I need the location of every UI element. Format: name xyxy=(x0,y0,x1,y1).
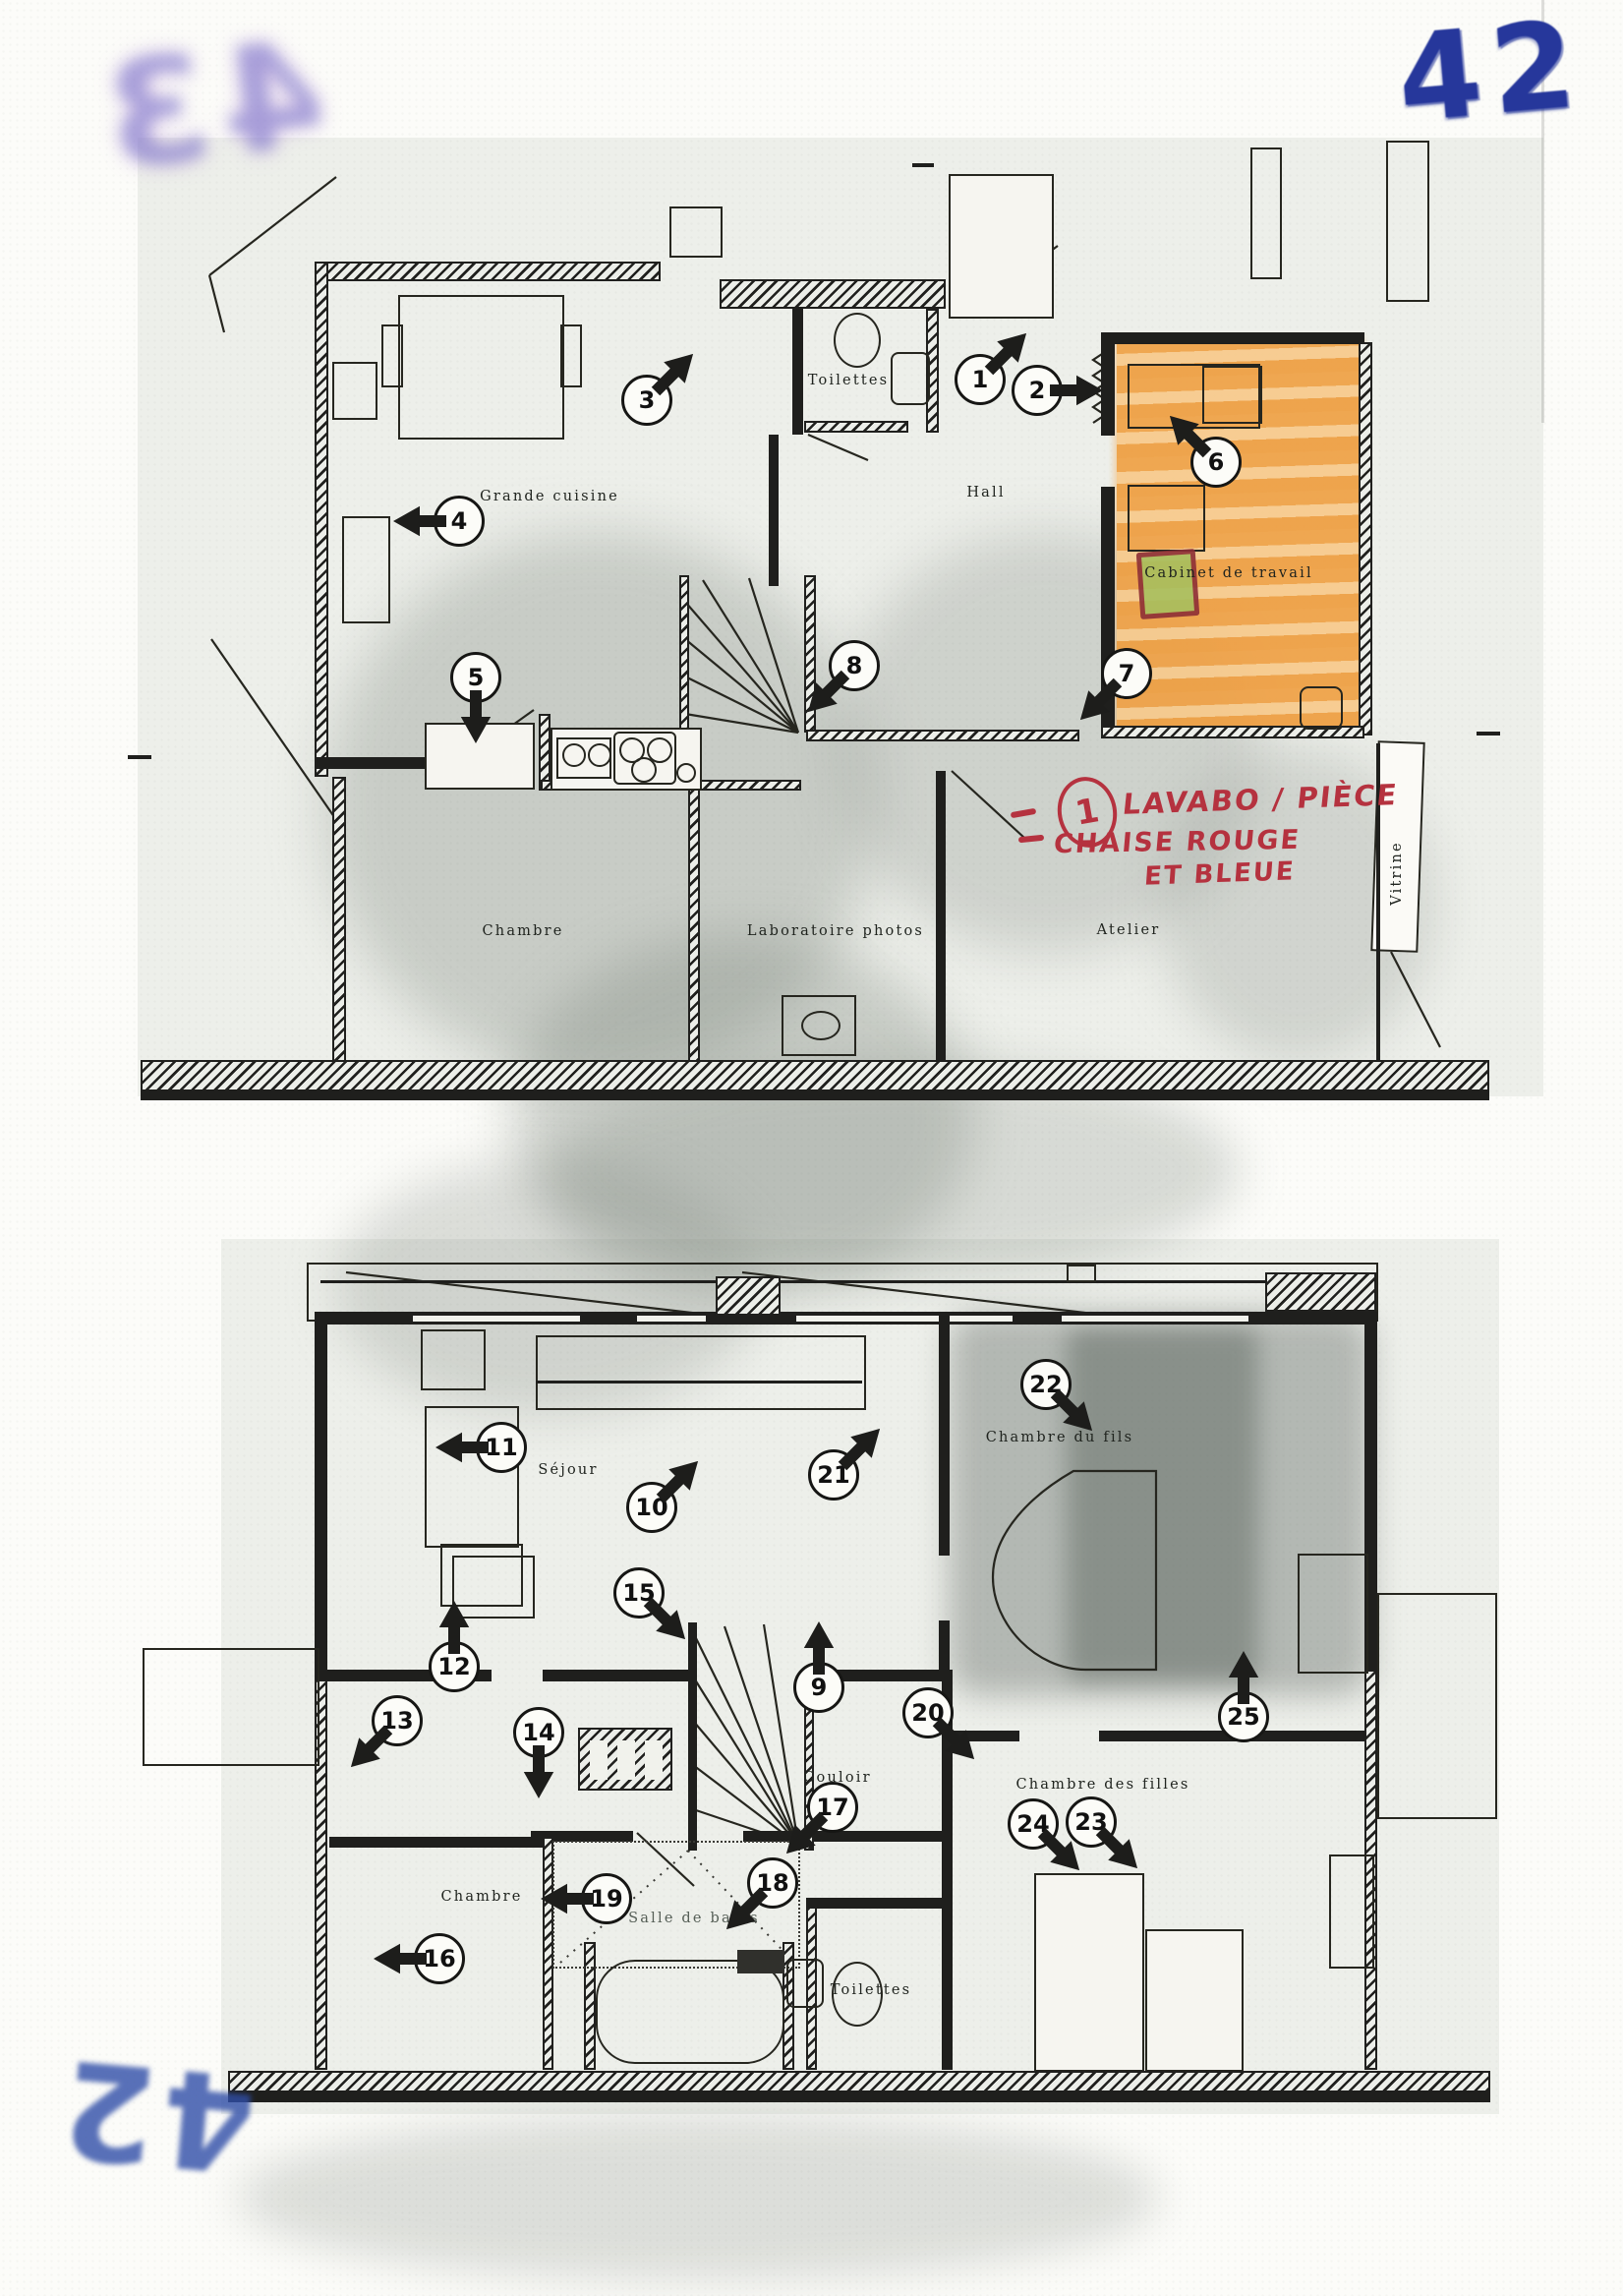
red-note-line3: ET BLEUE xyxy=(1143,856,1297,891)
wall xyxy=(942,1837,953,2070)
green-marker-note xyxy=(1136,549,1200,619)
wall-hatch xyxy=(1265,1272,1376,1312)
wall xyxy=(329,1837,544,1848)
room-label: Toilettes xyxy=(831,1982,912,1998)
wall xyxy=(806,1898,946,1909)
entry-top-wall xyxy=(720,279,946,309)
washbasin xyxy=(786,1959,824,2008)
room-label: Séjour xyxy=(538,1462,598,1478)
cupboard xyxy=(1298,1554,1368,1674)
labo-right-wall xyxy=(936,771,946,1062)
kitchen-top-wall xyxy=(315,262,661,281)
bed xyxy=(1034,1873,1144,2072)
terrace xyxy=(1377,1593,1497,1819)
geometry-layer xyxy=(0,0,1623,2296)
basin xyxy=(1300,686,1343,730)
toilettes-left-wall xyxy=(792,309,803,435)
left-outer-wall xyxy=(315,262,328,777)
bed xyxy=(1145,1929,1244,2072)
cabinet-left-wall xyxy=(1101,332,1115,436)
chair xyxy=(381,324,403,387)
toilettes-bottom-wall xyxy=(804,421,908,433)
room-label: Atelier xyxy=(1097,922,1161,938)
table xyxy=(1128,485,1205,552)
sofa xyxy=(536,1335,866,1410)
burner xyxy=(631,757,657,783)
door-leaf xyxy=(891,352,930,405)
glazing xyxy=(413,1316,580,1322)
sheet-number-handwritten: 42 xyxy=(1393,4,1590,140)
ground-line xyxy=(141,1089,1489,1100)
wall xyxy=(769,435,779,586)
ground-line xyxy=(228,2090,1490,2102)
room-label: Cabinet de travail xyxy=(1144,565,1313,581)
room-label: Chambre xyxy=(482,923,563,939)
room-label: Vitrine xyxy=(1389,841,1405,906)
desk xyxy=(1202,366,1262,424)
labo-left-wall xyxy=(688,771,700,1062)
sheet-number-bleed-through: 43 xyxy=(86,20,331,192)
kitchen-unit xyxy=(342,516,390,623)
sink-basin xyxy=(801,1011,840,1040)
kitchen-unit xyxy=(332,362,377,420)
burner xyxy=(588,743,611,767)
kitchen-table xyxy=(398,295,564,440)
stair-wall xyxy=(688,1622,697,1851)
cabinet-top-wall xyxy=(1101,332,1364,344)
room-label: Chambre xyxy=(440,1889,522,1905)
burner xyxy=(676,763,696,783)
glazing xyxy=(796,1316,1013,1322)
chair xyxy=(560,324,582,387)
notch xyxy=(1067,1265,1096,1282)
tick xyxy=(1477,732,1500,736)
wall xyxy=(543,1670,692,1681)
radiator-slot xyxy=(617,1740,635,1780)
glazing xyxy=(637,1316,706,1322)
red-note-bullet: 1 xyxy=(1072,791,1102,834)
frame-line xyxy=(320,1280,1357,1283)
radiator xyxy=(1329,1854,1374,1969)
ground-hatch xyxy=(141,1060,1489,1091)
left-outer-wall xyxy=(332,777,346,1064)
hall-bottom-wall xyxy=(806,730,1079,741)
cabinet-right-wall xyxy=(1359,342,1372,736)
furniture xyxy=(421,1329,486,1390)
roof-structure xyxy=(1386,141,1429,302)
room-label: Hall xyxy=(966,485,1005,500)
stair-wall xyxy=(679,575,689,737)
room-label: Chambre du fils xyxy=(986,1430,1134,1445)
radiator-slot xyxy=(645,1740,663,1780)
radiator-slot xyxy=(590,1740,608,1780)
room-label: Laboratoire photos xyxy=(747,923,924,939)
line xyxy=(536,1381,862,1383)
roof-structure xyxy=(669,206,723,258)
roof-structure xyxy=(1250,147,1282,279)
tick xyxy=(912,163,934,167)
tick xyxy=(128,755,151,759)
table xyxy=(452,1556,535,1619)
glazing xyxy=(1062,1316,1248,1322)
room-label: Grande cuisine xyxy=(480,489,619,504)
terrace xyxy=(143,1648,319,1766)
burner xyxy=(562,743,586,767)
red-note-line2: CHAISE ROUGE xyxy=(1053,825,1303,859)
roof-structure xyxy=(949,174,1054,319)
wall-hatch xyxy=(716,1276,781,1316)
wc-bowl xyxy=(834,313,881,368)
sheet-number-handwritten-inverted: 42 xyxy=(51,2038,260,2189)
bathtub xyxy=(596,1960,784,2064)
left-outer-wall xyxy=(315,1312,327,1677)
divider-wall xyxy=(939,1312,950,1556)
scanned-floor-plan-page: ToilettesHallGrande cuisineCabinet de tr… xyxy=(0,0,1623,2296)
bath-unit xyxy=(737,1950,784,1973)
room-label: Chambre des filles xyxy=(1015,1777,1189,1793)
room-label: Toilettes xyxy=(808,373,890,388)
